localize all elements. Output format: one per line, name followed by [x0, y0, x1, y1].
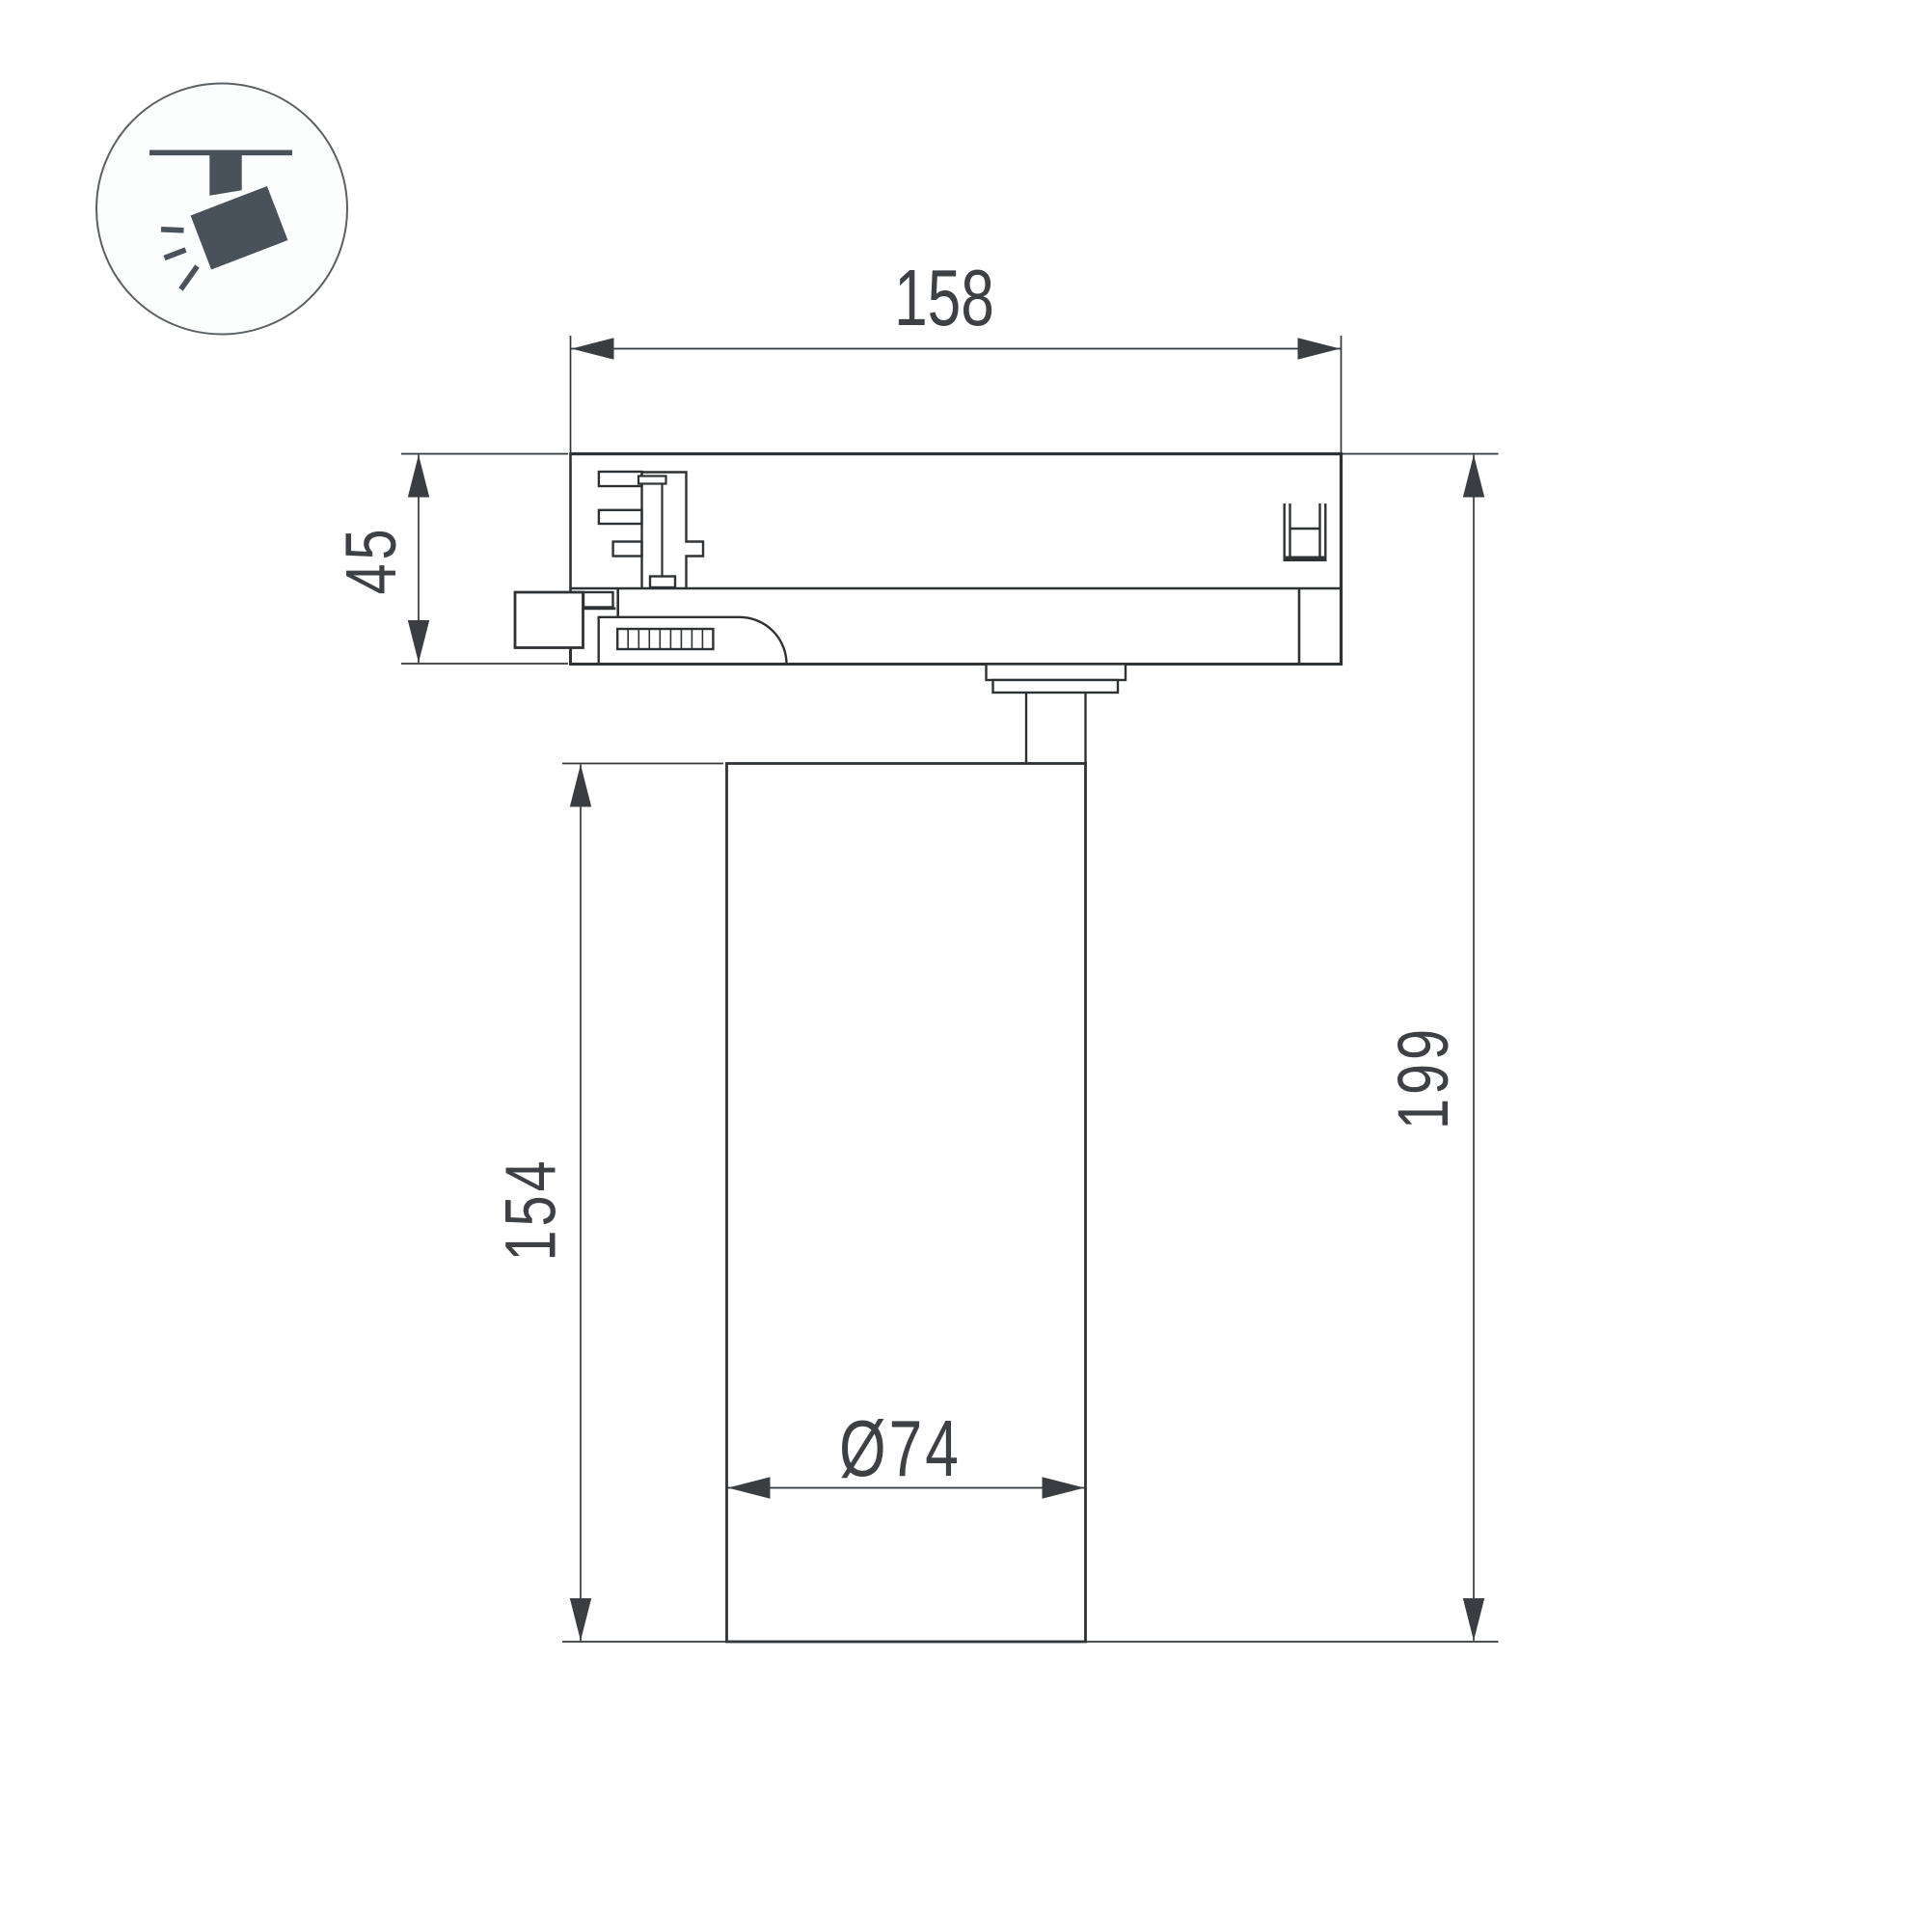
svg-text:154: 154	[492, 1156, 572, 1261]
svg-text:45: 45	[332, 525, 412, 594]
svg-text:158: 158	[894, 253, 994, 342]
svg-text:199: 199	[1384, 1025, 1464, 1129]
svg-text:Ø74: Ø74	[839, 1403, 962, 1493]
